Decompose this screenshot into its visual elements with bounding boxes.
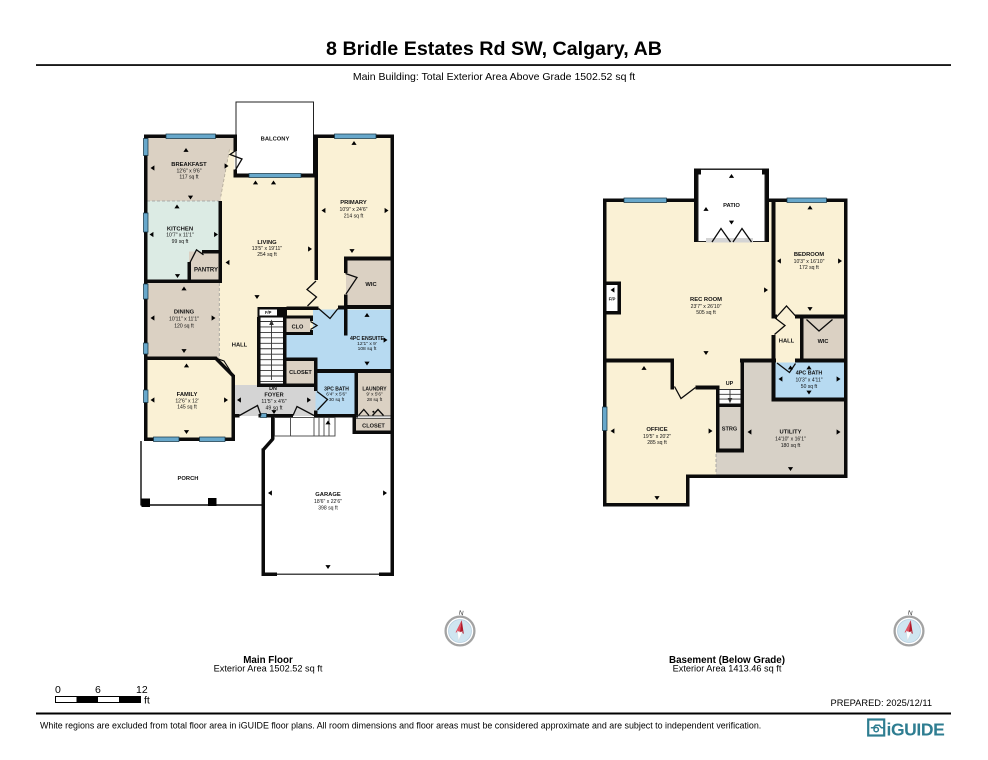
svg-text:254 sq ft: 254 sq ft <box>257 252 277 258</box>
svg-text:PATIO: PATIO <box>723 203 740 209</box>
svg-text:PRIMARY: PRIMARY <box>340 200 367 206</box>
svg-text:BEDROOM: BEDROOM <box>794 252 824 258</box>
svg-text:Exterior Area 1413.46 sq ft: Exterior Area 1413.46 sq ft <box>673 664 782 674</box>
svg-text:23'7" x 26'10": 23'7" x 26'10" <box>691 304 722 310</box>
svg-text:108 sq ft: 108 sq ft <box>358 346 377 352</box>
svg-text:BREAKFAST: BREAKFAST <box>171 162 207 168</box>
svg-text:HALL: HALL <box>232 343 248 349</box>
svg-text:PANTRY: PANTRY <box>194 268 218 274</box>
svg-text:99 sq ft: 99 sq ft <box>172 239 189 245</box>
svg-text:BALCONY: BALCONY <box>261 137 290 143</box>
svg-text:GARAGE: GARAGE <box>315 492 341 498</box>
svg-text:CLO: CLO <box>292 325 304 331</box>
svg-text:172 sq ft: 172 sq ft <box>799 265 819 271</box>
svg-text:398 sq ft: 398 sq ft <box>318 506 338 512</box>
svg-text:6: 6 <box>95 684 101 696</box>
svg-text:WIC: WIC <box>818 339 829 345</box>
svg-text:117 sq ft: 117 sq ft <box>179 175 199 181</box>
svg-text:4PC BATH: 4PC BATH <box>796 371 823 377</box>
svg-text:180 sq ft: 180 sq ft <box>781 443 801 449</box>
svg-text:F/P: F/P <box>609 297 616 302</box>
svg-text:0: 0 <box>55 684 61 696</box>
svg-text:11'5" x 4'6": 11'5" x 4'6" <box>261 399 286 405</box>
svg-text:ft: ft <box>144 695 150 707</box>
svg-text:18'6" x 22'6": 18'6" x 22'6" <box>314 499 342 505</box>
svg-text:145 sq ft: 145 sq ft <box>177 405 197 411</box>
svg-text:285 sq ft: 285 sq ft <box>647 440 667 446</box>
svg-text:HALL: HALL <box>779 338 795 344</box>
svg-text:8 Bridle Estates Rd SW, Calgar: 8 Bridle Estates Rd SW, Calgary, AB <box>326 38 662 60</box>
svg-text:10'9" x 24'6": 10'9" x 24'6" <box>340 207 368 213</box>
svg-text:Main Building: Total Exterior: Main Building: Total Exterior Area Above… <box>353 71 635 83</box>
svg-text:DN: DN <box>269 386 277 392</box>
svg-text:PORCH: PORCH <box>178 476 199 482</box>
svg-text:OFFICE: OFFICE <box>646 427 667 433</box>
svg-text:Exterior Area 1502.52 sq ft: Exterior Area 1502.52 sq ft <box>214 664 323 674</box>
svg-text:12'6" x 9'6": 12'6" x 9'6" <box>176 168 201 174</box>
svg-text:10'7" x 11'1": 10'7" x 11'1" <box>166 233 194 239</box>
svg-text:FOYER: FOYER <box>264 393 283 399</box>
svg-text:UP: UP <box>726 381 734 387</box>
svg-text:White regions are excluded fro: White regions are excluded from total fl… <box>40 721 761 731</box>
svg-text:19'5" x 20'2": 19'5" x 20'2" <box>643 434 671 440</box>
svg-text:WIC: WIC <box>365 282 377 288</box>
svg-text:50 sq ft: 50 sq ft <box>801 384 818 390</box>
svg-text:FAMILY: FAMILY <box>177 392 198 398</box>
svg-text:10'3" x 4'11": 10'3" x 4'11" <box>795 378 822 384</box>
svg-text:10'11" x 11'1": 10'11" x 11'1" <box>169 317 199 323</box>
svg-text:REC ROOM: REC ROOM <box>690 297 722 303</box>
svg-text:14'10" x 16'1": 14'10" x 16'1" <box>775 437 806 443</box>
svg-text:F/P: F/P <box>265 310 272 315</box>
svg-text:28 sq ft: 28 sq ft <box>367 397 383 402</box>
svg-text:CLOSET: CLOSET <box>289 370 312 376</box>
svg-text:120 sq ft: 120 sq ft <box>174 324 194 330</box>
svg-text:214 sq ft: 214 sq ft <box>344 214 364 220</box>
svg-text:505 sq ft: 505 sq ft <box>696 310 716 316</box>
svg-text:DINING: DINING <box>174 310 195 316</box>
svg-text:30 sq ft: 30 sq ft <box>329 397 345 402</box>
svg-text:UTILITY: UTILITY <box>780 430 802 436</box>
svg-text:PREPARED: 2025/12/11: PREPARED: 2025/12/11 <box>831 698 932 708</box>
svg-text:iGUIDE: iGUIDE <box>887 720 945 740</box>
svg-text:CLOSET: CLOSET <box>362 424 385 430</box>
svg-text:STRG: STRG <box>722 426 738 432</box>
